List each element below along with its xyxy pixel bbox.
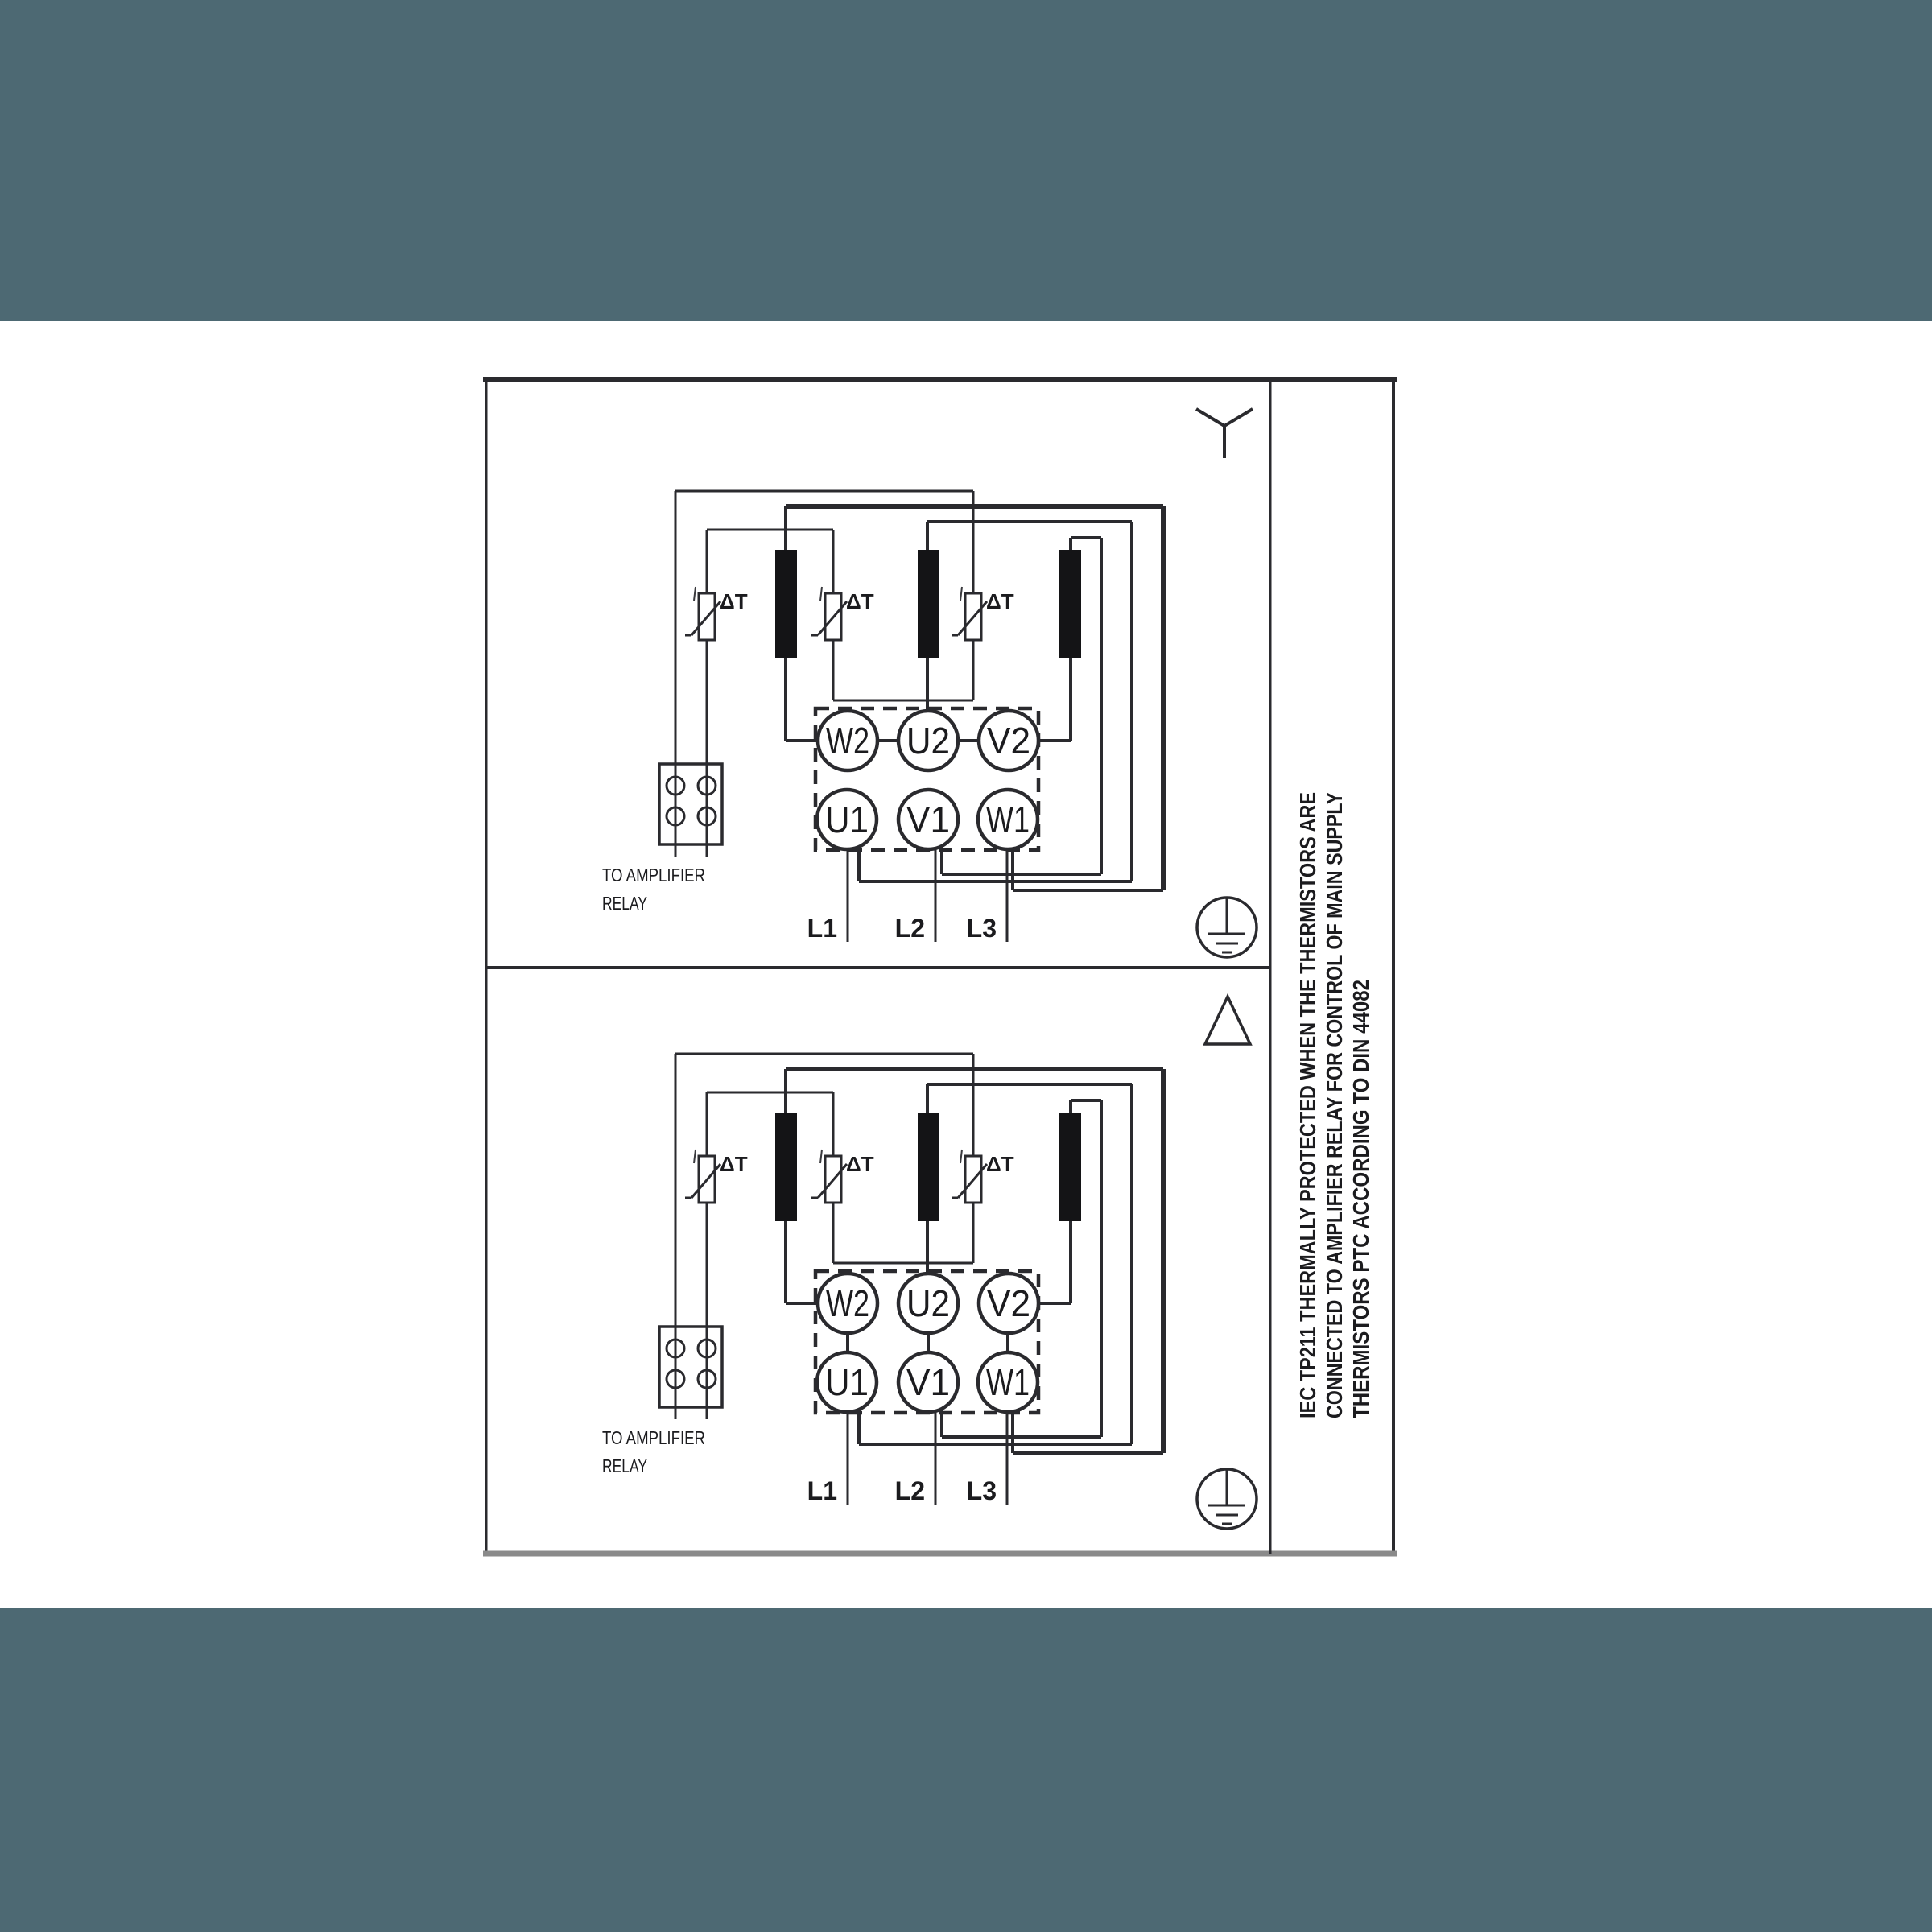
star-connection-icon <box>1196 409 1224 426</box>
terminal-label: V2 <box>987 720 1030 762</box>
motor-winding-bar <box>775 550 797 658</box>
thermistor-label: ΔT <box>720 1152 748 1176</box>
supply-line-label: L3 <box>967 914 997 943</box>
motor-winding-bar <box>1059 550 1081 658</box>
bottom-band <box>0 1608 1932 1932</box>
terminal-label: V1 <box>906 1361 950 1403</box>
top-band <box>0 0 1932 321</box>
terminal-label: W2 <box>826 1282 869 1324</box>
terminal-label: V2 <box>987 1282 1030 1324</box>
thermistor-label: ΔT <box>720 589 748 613</box>
thermistor-tick <box>960 587 962 601</box>
thermistor-label: ΔT <box>846 1152 874 1176</box>
note-line-3: THERMISTORS PTC ACCORDING TO DIN 44082 <box>1348 980 1373 1418</box>
terminal-label: U1 <box>825 799 869 840</box>
supply-line-label: L2 <box>895 1476 925 1505</box>
supply-line-label: L2 <box>895 914 925 943</box>
thermistor-tick <box>694 1150 696 1163</box>
thermistor-tick <box>960 1150 962 1163</box>
relay-terminal-block <box>659 764 722 844</box>
relay-note-line2: RELAY <box>602 1455 647 1476</box>
relay-terminal-block <box>659 1327 722 1407</box>
terminal-label: V1 <box>906 799 950 840</box>
terminal-label: U2 <box>906 1282 950 1324</box>
terminal-label: W1 <box>986 1361 1030 1403</box>
thermistor-tick <box>694 587 696 601</box>
thermistor-label: ΔT <box>846 589 874 613</box>
thermistor-label: ΔT <box>986 589 1014 613</box>
terminal-label: W2 <box>826 720 869 762</box>
star-connection-icon <box>1224 409 1253 426</box>
note-line-1: IEC TP211 THERMALLY PROTECTED WHEN THE T… <box>1295 792 1320 1418</box>
motor-winding-bar <box>918 550 939 658</box>
relay-note-line1: TO AMPLIFIER <box>602 865 705 885</box>
thermistor-label: ΔT <box>986 1152 1014 1176</box>
thermistor-tick <box>820 1150 822 1163</box>
note-line-2: CONNECTED TO AMPLIFIER RELAY FOR CONTROL… <box>1322 792 1347 1418</box>
motor-winding-bar <box>918 1113 939 1221</box>
supply-line-label: L3 <box>967 1476 997 1505</box>
motor-winding-bar <box>775 1113 797 1221</box>
terminal-label: U1 <box>825 1361 869 1403</box>
motor-wiring-diagram: ΔTΔTΔTTO AMPLIFIERRELAYW2U2V2U1V1W1L1L2L… <box>0 0 1932 1932</box>
relay-note-line1: TO AMPLIFIER <box>602 1427 705 1448</box>
terminal-label: W1 <box>986 799 1030 840</box>
page: ΔTΔTΔTTO AMPLIFIERRELAYW2U2V2U1V1W1L1L2L… <box>0 0 1932 1932</box>
terminal-label: U2 <box>906 720 950 762</box>
motor-winding-bar <box>1059 1113 1081 1221</box>
supply-line-label: L1 <box>807 914 837 943</box>
supply-line-label: L1 <box>807 1476 837 1505</box>
thermistor-tick <box>820 587 822 601</box>
relay-note-line2: RELAY <box>602 893 647 914</box>
delta-connection-icon <box>1205 997 1250 1044</box>
